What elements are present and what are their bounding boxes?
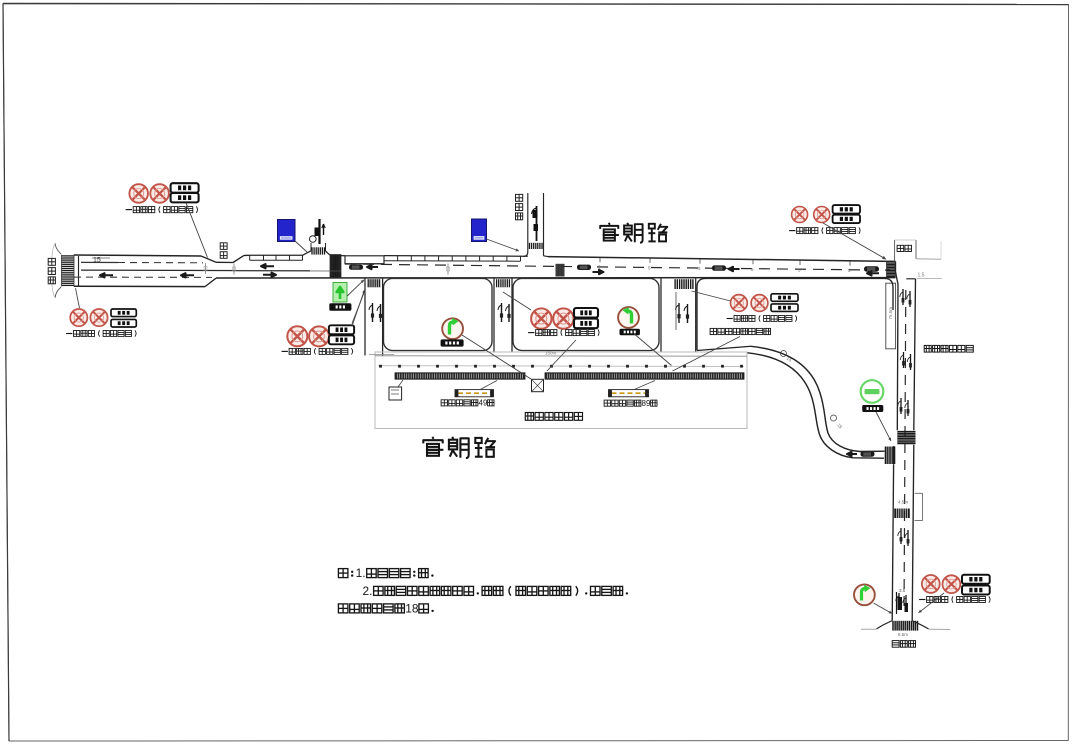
- svg-text:18: 18: [405, 601, 419, 615]
- svg-text:4.5m: 4.5m: [898, 500, 908, 505]
- svg-text:75.5m: 75.5m: [888, 307, 893, 320]
- svg-text:2.: 2.: [363, 584, 373, 598]
- svg-text:49: 49: [479, 399, 488, 408]
- svg-text:89: 89: [642, 399, 651, 408]
- svg-text:3.5: 3.5: [899, 588, 906, 593]
- svg-text:1.: 1.: [356, 566, 366, 580]
- svg-text:1.5: 1.5: [918, 273, 925, 279]
- svg-text:6.5m: 6.5m: [898, 632, 908, 637]
- svg-text:150m: 150m: [545, 351, 557, 356]
